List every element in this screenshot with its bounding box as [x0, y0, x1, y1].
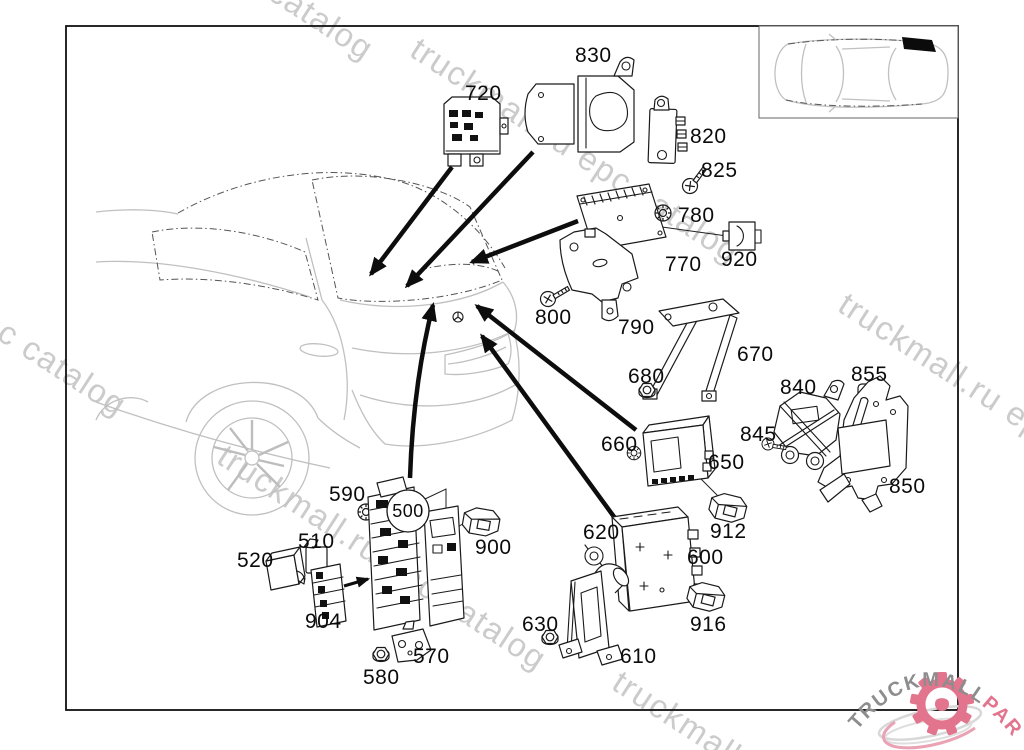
part-label-580: 580 — [363, 666, 400, 690]
part-620-drawing — [585, 545, 603, 567]
arrow-500 — [410, 305, 433, 478]
part-label-600: 600 — [687, 546, 724, 570]
part-900-drawing — [461, 506, 501, 538]
arrow-720 — [371, 167, 452, 274]
part-label-520: 520 — [237, 549, 274, 573]
part-label-660: 660 — [601, 433, 638, 457]
part-label-590: 590 — [329, 483, 366, 507]
part-label-840: 840 — [780, 376, 817, 400]
part-label-912: 912 — [710, 520, 747, 544]
part-580-drawing — [373, 648, 389, 662]
watermark-text: truckmall.ru epc catalog — [606, 663, 949, 750]
part-label-916: 916 — [690, 613, 727, 637]
part-920-drawing — [723, 222, 761, 250]
part-800-drawing — [539, 286, 572, 308]
arrow-830 — [407, 152, 533, 286]
part-label-900: 900 — [475, 536, 512, 560]
part-label-650: 650 — [708, 451, 745, 475]
part-label-820: 820 — [690, 125, 727, 149]
part-830-drawing — [525, 57, 634, 152]
part-label-570: 570 — [413, 645, 450, 669]
part-720-drawing — [444, 97, 508, 166]
part-label-825: 825 — [701, 159, 738, 183]
part-label-670: 670 — [737, 343, 774, 367]
part-label-780: 780 — [678, 204, 715, 228]
part-label-610: 610 — [620, 645, 657, 669]
arrow-904-to-fusebox — [344, 579, 368, 586]
part-650-drawing — [643, 416, 715, 486]
part-label-830: 830 — [575, 44, 612, 68]
part-label-770: 770 — [665, 253, 702, 277]
part-label-510: 510 — [298, 530, 335, 554]
part-label-620: 620 — [583, 521, 620, 545]
part-label-920: 920 — [721, 248, 758, 272]
part-label-630: 630 — [522, 613, 559, 637]
part-label-500: 500 — [387, 501, 429, 522]
part-label-850: 850 — [889, 475, 926, 499]
part-label-845: 845 — [740, 423, 777, 447]
part-label-800: 800 — [535, 306, 572, 330]
car-rear-sketch — [96, 173, 519, 515]
watermark-text: truckmall.ru epc catalog — [38, 0, 381, 67]
parts-diagram-page: truckmall.ru epc catalog truckmall.ru ep… — [0, 0, 1024, 750]
part-820-drawing — [648, 96, 687, 163]
part-label-855: 855 — [851, 363, 888, 387]
part-label-680: 680 — [628, 365, 665, 389]
car-locator-inset — [759, 26, 958, 118]
part-label-720: 720 — [465, 82, 502, 106]
part-label-790: 790 — [618, 316, 655, 340]
part-label-904: 904 — [305, 610, 342, 634]
